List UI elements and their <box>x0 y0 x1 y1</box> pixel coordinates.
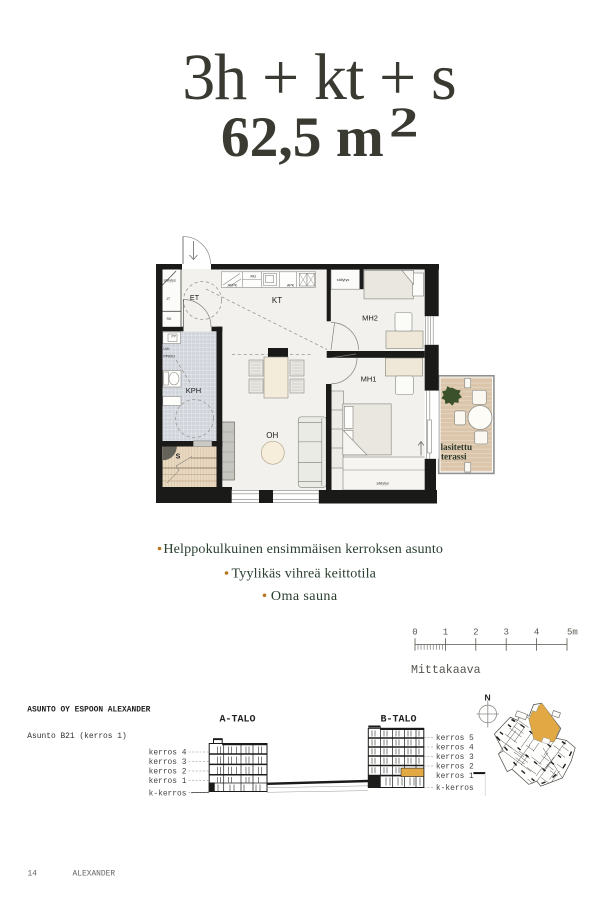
svg-text:kerros 3: kerros 3 <box>436 753 474 762</box>
svg-text:säilytys: säilytys <box>377 482 390 486</box>
svg-text:4: 4 <box>534 628 539 638</box>
svg-text:PPK/KJ: PPK/KJ <box>164 355 176 359</box>
svg-text:2: 2 <box>389 101 419 147</box>
svg-text:APK: APK <box>287 283 295 287</box>
svg-text:säilytys: säilytys <box>164 278 177 282</box>
svg-text:Mittakaava: Mittakaava <box>411 664 481 677</box>
svg-text:kerros 1: kerros 1 <box>149 777 187 786</box>
svg-text:62,5 m: 62,5 m <box>221 106 384 169</box>
svg-text:5m: 5m <box>567 628 578 638</box>
svg-text:Helppokulkuinen ensimmäisen ke: Helppokulkuinen ensimmäisen kerroksen as… <box>163 541 443 557</box>
svg-text:N: N <box>485 693 491 703</box>
svg-text:k-kerros: k-kerros <box>436 784 474 793</box>
svg-text:kerros 2: kerros 2 <box>149 767 187 776</box>
svg-text:JT: JT <box>166 297 171 301</box>
svg-text:lasitettu: lasitettu <box>441 442 473 452</box>
svg-text:14: 14 <box>28 870 38 879</box>
svg-text:säilytys: säilytys <box>337 278 350 282</box>
svg-text:kerros 4: kerros 4 <box>149 748 187 757</box>
svg-text:ASUNTO OY ESPOON ALEXANDER: ASUNTO OY ESPOON ALEXANDER <box>27 706 150 715</box>
svg-text:OH: OH <box>266 431 278 440</box>
svg-text:SK: SK <box>167 317 173 321</box>
svg-text:kerros 2: kerros 2 <box>436 763 474 772</box>
svg-text:k-kerros: k-kerros <box>149 789 187 798</box>
svg-text:A-TALO: A-TALO <box>219 715 255 726</box>
svg-text:Tyylikäs vihreä keittotila: Tyylikäs vihreä keittotila <box>231 566 376 582</box>
svg-text:JK/PK: JK/PK <box>227 283 238 287</box>
svg-text:LVK: LVK <box>164 347 171 351</box>
svg-text:KPH: KPH <box>186 386 201 395</box>
svg-text:ET: ET <box>190 293 200 302</box>
svg-text:0: 0 <box>412 628 417 638</box>
svg-text:1: 1 <box>443 628 448 638</box>
svg-text:kerros 5: kerros 5 <box>436 734 474 743</box>
svg-text:terassi: terassi <box>441 451 467 461</box>
svg-text:Asunto B21 (kerros 1): Asunto B21 (kerros 1) <box>27 732 126 741</box>
svg-text:KT: KT <box>272 296 282 305</box>
svg-text:Oma sauna: Oma sauna <box>271 588 338 604</box>
svg-text:MU: MU <box>251 274 257 278</box>
svg-text:MH2: MH2 <box>362 313 378 322</box>
svg-text:S: S <box>176 454 181 461</box>
svg-text:kerros 1: kerros 1 <box>436 772 474 781</box>
svg-text:ALEXANDER: ALEXANDER <box>73 870 116 879</box>
svg-text:kerros 4: kerros 4 <box>436 744 474 753</box>
svg-text:3: 3 <box>503 628 508 638</box>
svg-text:MH1: MH1 <box>361 374 377 383</box>
svg-text:kerros 3: kerros 3 <box>149 758 187 767</box>
svg-text:2: 2 <box>473 628 478 638</box>
svg-text:PY: PY <box>172 335 177 339</box>
svg-text:B-TALO: B-TALO <box>380 715 416 726</box>
